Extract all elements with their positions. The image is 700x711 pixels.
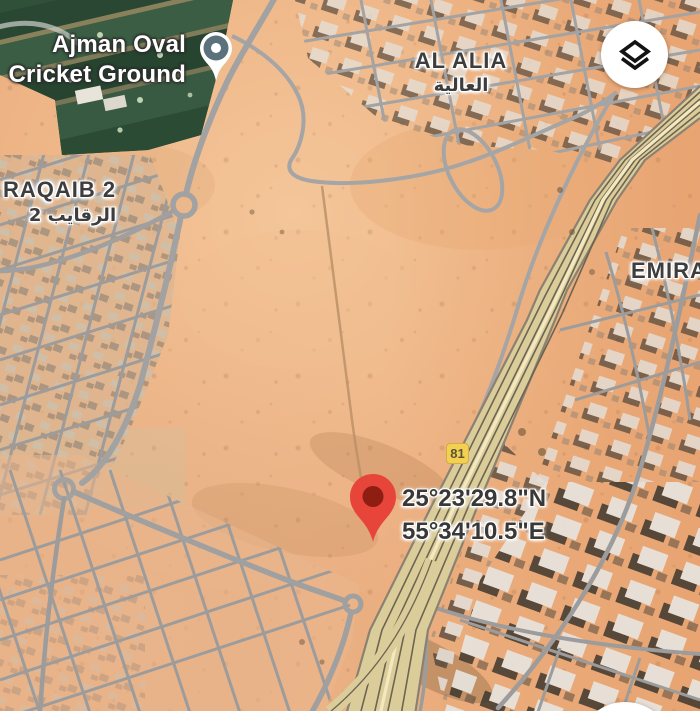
- poi-label-line2: Cricket Ground: [0, 60, 186, 90]
- poi-label-cricket-ground[interactable]: Ajman Oval Cricket Ground: [0, 30, 186, 90]
- coordinates-label: 25°23'29.8"N 55°34'10.5"E: [402, 482, 546, 548]
- layers-icon: [615, 35, 655, 75]
- district-label-emirates: EMIRA: [631, 258, 700, 284]
- coordinates-lat: 25°23'29.8"N: [402, 482, 546, 515]
- layers-button[interactable]: [601, 21, 668, 88]
- poi-pin-icon[interactable]: [198, 31, 234, 83]
- district-label-raqaib: RAQAIB 2 الرقايب 2: [0, 177, 116, 226]
- coordinates-lng: 55°34'10.5"E: [402, 515, 546, 548]
- route-badge-81: 81: [446, 443, 469, 464]
- dropped-pin-icon[interactable]: [348, 473, 398, 543]
- district-label-al-alia-ar: العالية: [399, 75, 523, 96]
- district-label-emirates-en: EMIRA: [631, 258, 700, 283]
- district-label-raqaib-en: RAQAIB 2: [3, 177, 116, 203]
- map-view: Ajman Oval Cricket Ground AL ALIA العالي…: [0, 0, 700, 711]
- district-label-al-alia: AL ALIA العالية: [399, 48, 523, 96]
- district-label-raqaib-ar: الرقايب 2: [0, 205, 116, 226]
- district-label-al-alia-en: AL ALIA: [399, 48, 523, 74]
- satellite-map[interactable]: [0, 0, 700, 711]
- poi-label-line1: Ajman Oval: [0, 30, 186, 60]
